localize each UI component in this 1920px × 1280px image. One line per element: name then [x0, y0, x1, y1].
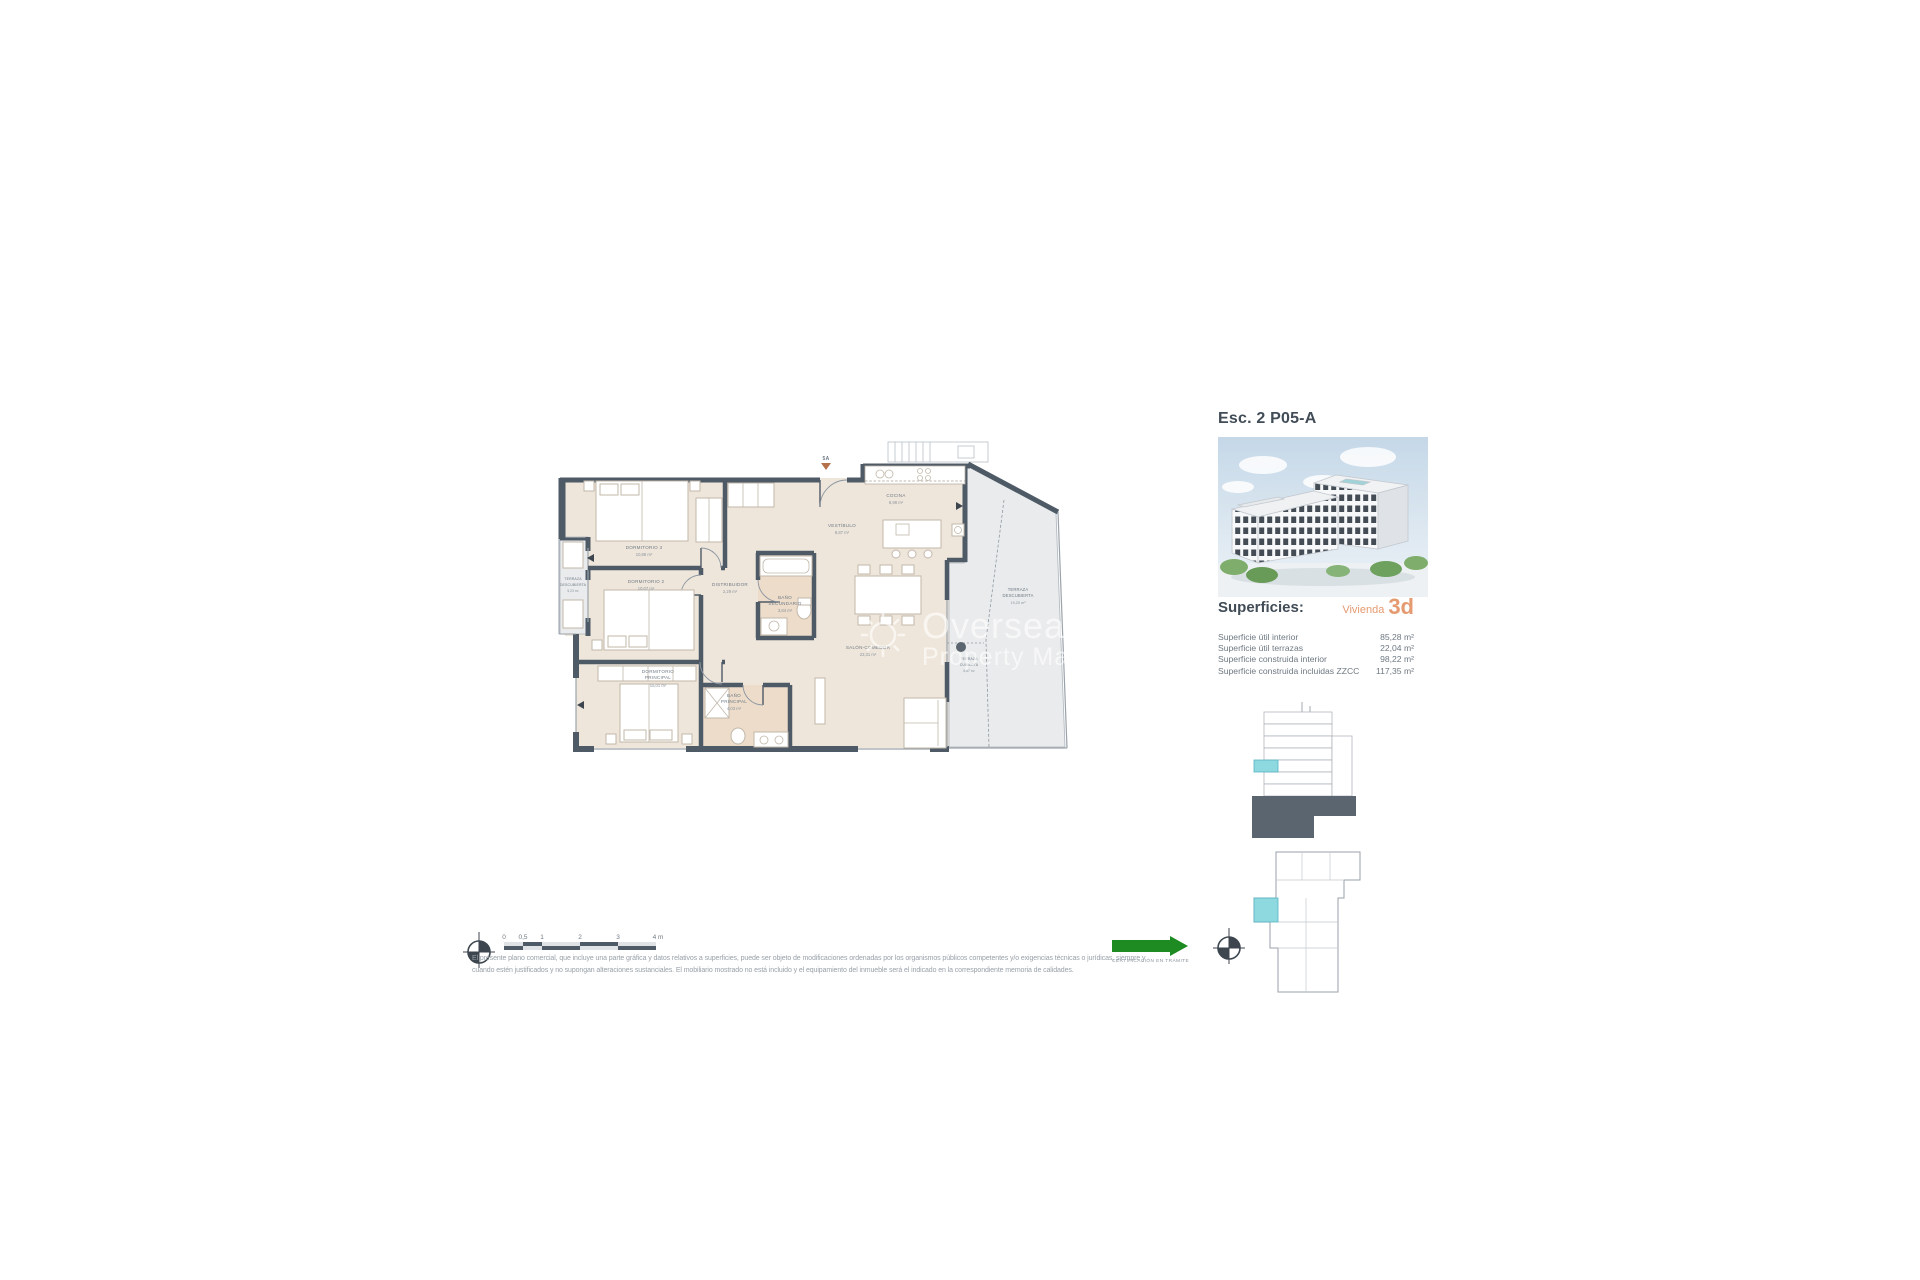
svg-text:DORMITORIO 2: DORMITORIO 2 — [628, 579, 665, 584]
svg-text:23,31 m²: 23,31 m² — [860, 652, 877, 657]
vivienda-number: 3d — [1388, 598, 1414, 616]
key-plan — [1240, 848, 1380, 1006]
svg-text:6,98 m²: 6,98 m² — [889, 500, 904, 505]
svg-text:BAÑO: BAÑO — [727, 692, 741, 698]
entrance-label: 5A — [823, 456, 830, 462]
svg-text:0,5: 0,5 — [518, 934, 527, 941]
compass-icon — [1212, 926, 1246, 966]
svg-text:TERRAZA: TERRAZA — [564, 577, 582, 581]
svg-text:15,01 m²: 15,01 m² — [650, 683, 667, 688]
superficies-heading: Superficies: — [1218, 599, 1304, 616]
svg-text:VESTÍBULO: VESTÍBULO — [828, 522, 856, 528]
svg-text:6,87 m²: 6,87 m² — [963, 669, 975, 673]
entrance-arrow-icon — [821, 463, 831, 470]
svg-text:3: 3 — [616, 934, 620, 941]
table-row: Superficie útil terrazas22,04 m² — [1218, 643, 1414, 654]
building-render — [1218, 437, 1428, 597]
svg-text:DORMITORIO: DORMITORIO — [642, 669, 674, 674]
svg-text:BAÑO: BAÑO — [778, 594, 792, 600]
svg-text:4,03 m²: 4,03 m² — [727, 706, 742, 711]
svg-text:TERRAZA: TERRAZA — [1008, 587, 1029, 592]
svg-text:8,87 m²: 8,87 m² — [835, 530, 850, 535]
vivienda-label: Vivienda — [1342, 604, 1384, 616]
page-title: Esc. 2 P05-A — [1218, 410, 1316, 428]
furniture-dorm2 — [592, 590, 694, 650]
section-base — [1252, 796, 1356, 838]
superficies-header: Superficies: Vivienda 3d — [1218, 598, 1414, 616]
svg-text:19,20 m²: 19,20 m² — [1011, 601, 1027, 605]
svg-text:3,84 m²: 3,84 m² — [778, 608, 793, 613]
svg-text:SECUNDARIO: SECUNDARIO — [768, 601, 801, 606]
table-row: Superficie construida interior98,22 m² — [1218, 654, 1414, 665]
floor-plan: 5A DORMITORIO 3 10,88 m² DORMITORIO 2 10… — [558, 436, 1082, 770]
svg-text:DESCUBIERTA: DESCUBIERTA — [560, 583, 587, 587]
table-row: Superficie construida incluidas ZZCC117,… — [1218, 666, 1414, 677]
svg-text:5,23 m²: 5,23 m² — [567, 589, 579, 593]
svg-text:TERRAZA: TERRAZA — [960, 657, 978, 661]
building-section-diagram — [1244, 698, 1368, 850]
svg-text:SALÓN-COMEDOR: SALÓN-COMEDOR — [846, 644, 891, 650]
svg-text:DORMITORIO 3: DORMITORIO 3 — [626, 545, 663, 550]
svg-text:4 m: 4 m — [653, 934, 664, 941]
disclaimer-line: El presente plano comercial, que incluye… — [472, 953, 1192, 965]
svg-text:DESCUBIERTA: DESCUBIERTA — [1002, 593, 1033, 598]
svg-text:1: 1 — [540, 934, 544, 941]
disclaimer: El presente plano comercial, que incluye… — [472, 953, 1192, 978]
highlighted-unit — [1254, 898, 1278, 922]
certification-label: CERTIFICACIÓN EN TRÁMITE — [1112, 959, 1189, 964]
svg-text:DISTRIBUIDOR: DISTRIBUIDOR — [712, 582, 748, 587]
svg-text:10,88 m²: 10,88 m² — [636, 552, 653, 557]
svg-text:COCINA: COCINA — [886, 493, 906, 498]
svg-text:2,29 m²: 2,29 m² — [723, 589, 738, 594]
table-row: Superficie útil interior85,28 m² — [1218, 632, 1414, 643]
svg-text:PRINCIPAL: PRINCIPAL — [645, 675, 671, 680]
disclaimer-line: cuando estén justificados y no supongan … — [472, 965, 1192, 977]
highlighted-floor — [1254, 760, 1278, 772]
svg-text:PRINCIPAL: PRINCIPAL — [721, 699, 747, 704]
svg-text:CUBIERTA: CUBIERTA — [960, 663, 979, 667]
svg-text:2: 2 — [578, 934, 582, 941]
plan-sheet: 5A DORMITORIO 3 10,88 m² DORMITORIO 2 10… — [0, 0, 1920, 1280]
common-stairs-outline — [888, 442, 988, 462]
furniture-vestibule-closet — [728, 483, 774, 507]
svg-text:0: 0 — [502, 934, 506, 941]
superficies-table: Superficie útil interior85,28 m² Superfi… — [1218, 632, 1414, 677]
certification-arrow-icon — [1112, 936, 1192, 956]
svg-text:10,07 m²: 10,07 m² — [638, 586, 655, 591]
